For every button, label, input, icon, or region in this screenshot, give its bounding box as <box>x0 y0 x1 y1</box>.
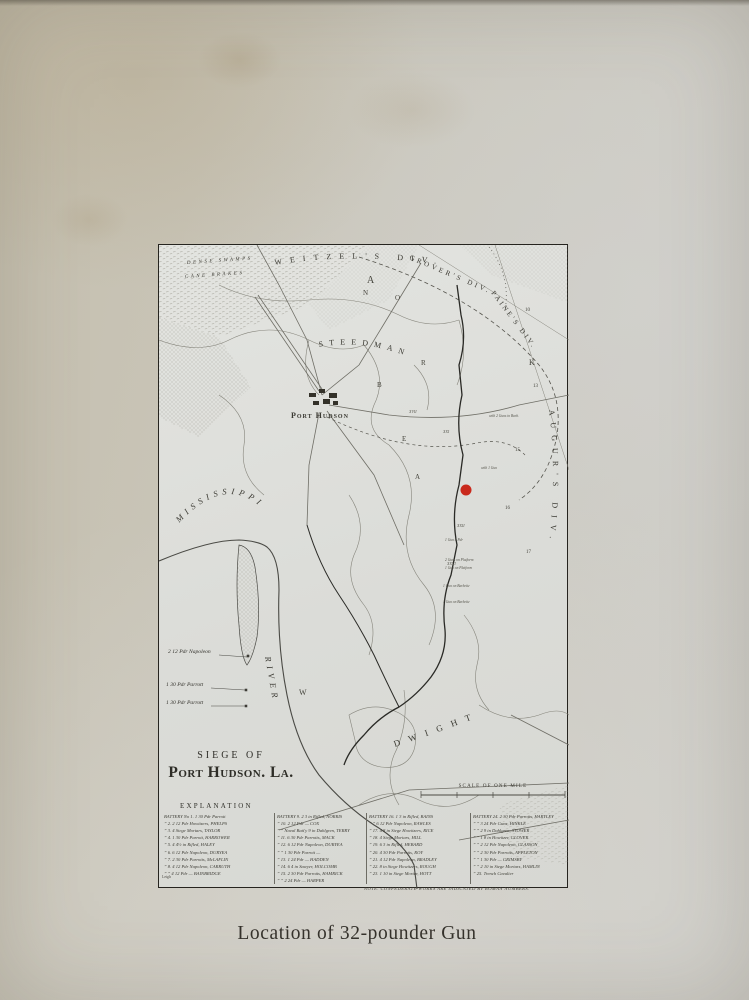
svg-text:RIVER: RIVER <box>263 655 281 703</box>
legend-row: BATTERY 9. 2 3 in Rifled, NORRIS <box>277 813 366 820</box>
map-annotation: with 2 Guns in Barb. <box>489 414 519 418</box>
legend-row: ” ” 1 8 in Howitzer, GLOVER <box>473 834 566 841</box>
scale-label: SCALE OF ONE MILE <box>459 784 528 789</box>
legend-row: ” ” 1 30 Pdr Parrott — <box>277 849 366 856</box>
map-letter: B <box>377 381 382 389</box>
map-annotation: XXI <box>442 429 450 434</box>
map-annotation: XXII <box>456 523 465 528</box>
gun-leader-lines <box>211 655 249 707</box>
fortification-lines <box>307 285 464 765</box>
label-river: RIVER <box>263 655 281 703</box>
gun-label-parrott-1: 1 30 Pdr Parrott <box>166 682 203 688</box>
legend-row: ” 14. 6 4 in Sawyer, HOLCOMB <box>277 863 366 870</box>
legend-row: ” ” 2 9 in Dahlgren, STOWER <box>473 827 566 834</box>
map-plate: WEITZEL'S DIV. GROVER'S DIV. PAINE'S DIV… <box>158 244 568 888</box>
caption: Location of 32-pounder Gun <box>145 923 569 945</box>
map-letter: 13 <box>533 384 539 389</box>
legend-row: ” ” 2 24 Pdr — HARPER <box>277 877 366 884</box>
legend-row: ” 12. 6 12 Pdr Napoleon, DURYEA <box>277 841 366 848</box>
legend-row: ” ” 2 30 Pdr Parrotts, APPLETON <box>473 849 566 856</box>
legend-row: ” ” 1 30 Pdr — GRIMSBY <box>473 856 566 863</box>
legend-heading: EXPLANATION <box>180 802 566 810</box>
label-port-hudson: Port Hudson <box>291 411 349 420</box>
legend-column-4: BATTERY 24. 2 30 Pdr Parrotts, HARTLEY” … <box>470 813 566 884</box>
legend-column-3: BATTERY 16. 1 3 in Rifled, BAINS” ” 6 12… <box>366 813 470 884</box>
legend-row: ” 18. 4 Siege Mortars, HILL <box>369 834 470 841</box>
legend-row: ” ” 6 12 Pdr Napoleon, RAWLES <box>369 820 470 827</box>
gun-label-parrott-2: 1 30 Pdr Parrott <box>166 700 203 706</box>
legend-row: ” 20. 4 30 Pdr Parrotts, ROY <box>369 849 470 856</box>
map-annotation: 1 Gun on Barbette <box>443 584 470 588</box>
map-title-line1: SIEGE OF <box>165 750 297 761</box>
legend-row: ” 10. 2 12 Pdr — COX <box>277 820 366 827</box>
legend-note: NOTE. CONFEDERATE WORKS ARE INDICATED BY… <box>364 886 566 891</box>
map-title-block: SIEGE OF Port Hudson. La. <box>165 750 297 782</box>
legend-row: ” 13. 1 24 Pdr — HADDEN <box>277 856 366 863</box>
legend-row: ” 22. 8 in Siege Howitzers, ROUGH <box>369 863 470 870</box>
svg-text:MISSISSIPPI: MISSISSIPPI <box>173 486 267 525</box>
map-annotation: XVII <box>408 409 417 414</box>
legend-row: ” 6. 6 12 Pdr Napoleon, DURYEA <box>164 849 274 856</box>
legend-row: ” 11. 6 30 Pdr Parrotts, MACK <box>277 834 366 841</box>
map-letter: 16 <box>505 506 511 511</box>
legend-columns: BATTERY No 1. 1 30 Pdr Parrott” 2. 2 12 … <box>162 813 566 884</box>
map-letter: K <box>529 358 535 367</box>
map-letter: 15 <box>515 448 521 453</box>
map-letter: A <box>367 275 375 286</box>
map-letter: R <box>421 359 426 367</box>
legend-row: BATTERY 24. 2 30 Pdr Parrotts, HARTLEY <box>473 813 566 820</box>
legend-row: ” 21. 4 12 Pdr Napoleon, BRADLEY <box>369 856 470 863</box>
legend-row: ” 23. 1 10 in Siege Mortar, HOTT <box>369 870 470 877</box>
legend-row: ” ” 2 10 in Siege Mortars, HAMLIN <box>473 863 566 870</box>
label-dwight: DWIGHT <box>392 709 480 749</box>
legend-row: ” 17. 4 8 in Siege Howitzers, RICE <box>369 827 470 834</box>
legend-row: ” 7. 2 30 Pdr Parrotts, McLAFLIN <box>164 856 274 863</box>
legend-row: ” 4. 1 30 Pdr Parrott, HARROWER <box>164 834 274 841</box>
legend-row: ” ” 4 12 Pdr — BAINBRIDGE <box>164 870 274 877</box>
photo-top-edge <box>0 0 749 6</box>
svg-text:AUGUR'S DIV.: AUGUR'S DIV. <box>547 409 560 546</box>
gun-location-marker <box>461 485 472 496</box>
map-annotation: 1 Gun on Barbette <box>443 600 470 604</box>
legend-row: ” ” 2 12 Pdr Napoleon, GLASSON <box>473 841 566 848</box>
engraver-mark: Leigh <box>162 875 171 879</box>
map-letter: 17 <box>526 550 532 555</box>
legend-row: ” ” Naval Batt'y 9 in Dahlgren, TERRY <box>277 827 366 834</box>
legend-row: ” 19. 6 3 in Rifled, HEBARD <box>369 841 470 848</box>
legend-row: BATTERY 16. 1 3 in Rifled, BAINS <box>369 813 470 820</box>
map-letter: W <box>299 688 307 697</box>
map-annotation: 1 Gun 8 Pdr <box>445 538 463 542</box>
map-letter: 10 <box>525 308 531 313</box>
gun-label-napoleon: 2 12 Pdr Napoleon <box>168 649 211 655</box>
legend-row: ” ” 3 24 Pdr Guns, HINKLE <box>473 820 566 827</box>
legend-row: ” 25. Trench Cavalier <box>473 870 566 877</box>
label-augurs-div: AUGUR'S DIV. <box>547 409 560 546</box>
legend-column-1: BATTERY No 1. 1 30 Pdr Parrott” 2. 2 12 … <box>162 813 274 884</box>
label-mississippi: MISSISSIPPI <box>173 486 267 525</box>
town-blocks <box>309 389 338 405</box>
map-letter: O <box>395 294 400 302</box>
legend-row: ” 3. 4 Siege Mortars, TAYLOR <box>164 827 274 834</box>
map-drawing: WEITZEL'S DIV. GROVER'S DIV. PAINE'S DIV… <box>159 245 569 889</box>
map-annotation: 1 Gun on Platform <box>445 566 472 570</box>
legend-column-2: BATTERY 9. 2 3 in Rifled, NORRIS” 10. 2 … <box>274 813 366 884</box>
legend-row: ” 15. 2 30 Pdr Parrotts, HAMRICK <box>277 870 366 877</box>
legend-row: ” 5. 4 4½ in Rifled, HALEY <box>164 841 274 848</box>
map-annotation: with 1 Gun <box>481 466 497 470</box>
legend-row: BATTERY No 1. 1 30 Pdr Parrott <box>164 813 274 820</box>
legend-row: ” 8. 4 12 Pdr Napoleon, CARRUTH <box>164 863 274 870</box>
map-annotation: 2 Guns on Platform <box>445 558 474 562</box>
map-title-line2: Port Hudson. La. <box>165 764 297 782</box>
svg-text:PAINE'S DIV.: PAINE'S DIV. <box>489 289 538 350</box>
legend-row: ” 2. 2 12 Pdr Howitzers, PHELPS <box>164 820 274 827</box>
map-letter: N <box>363 289 368 297</box>
map-letter: A <box>415 473 420 481</box>
label-paines-div: PAINE'S DIV. <box>489 289 538 350</box>
svg-text:DWIGHT: DWIGHT <box>392 709 480 749</box>
map-letter: E <box>402 435 406 443</box>
legend: EXPLANATION BATTERY No 1. 1 30 Pdr Parro… <box>162 802 566 891</box>
